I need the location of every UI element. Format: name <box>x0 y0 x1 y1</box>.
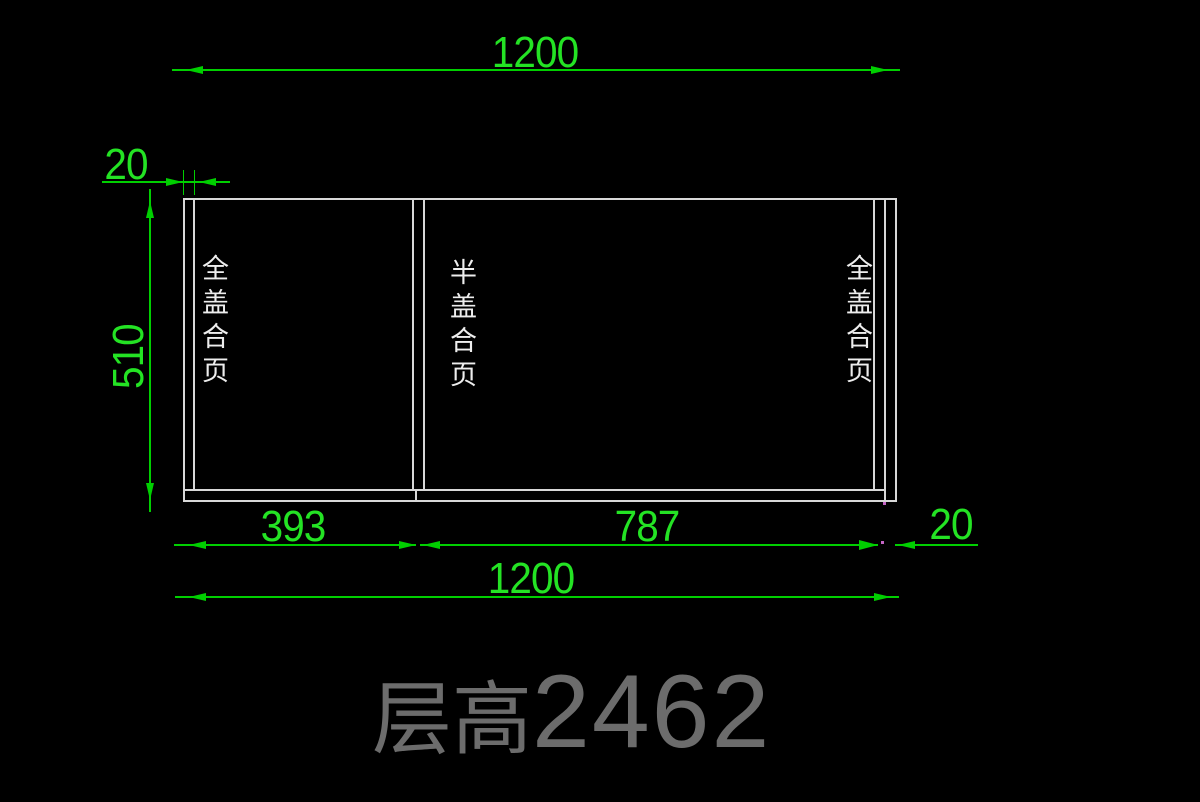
right-door-edge-line <box>873 198 875 491</box>
right-arrowhead <box>874 593 894 601</box>
right-arrowhead <box>399 541 419 549</box>
left-arrowhead <box>183 66 203 74</box>
left-door-hinge-label[interactable]: 全盖合页 <box>199 254 226 390</box>
cabinet-right-edge <box>895 198 897 502</box>
right-arrowhead <box>871 66 891 74</box>
top-arrowhead <box>146 198 154 218</box>
left-arrowhead <box>186 541 206 549</box>
middle-door-hinge-label[interactable]: 半盖合页 <box>447 258 474 394</box>
left-arrowhead <box>420 541 440 549</box>
middle-divider-bottom-stub <box>415 490 417 501</box>
floor-height-title[interactable]: 层高2462 <box>372 660 771 771</box>
dim-text-left-panel[interactable]: 20 <box>104 143 147 187</box>
right-door-hinge-label[interactable]: 全盖合页 <box>843 254 870 390</box>
snap-marker <box>881 541 884 544</box>
right-panel-inner-line <box>884 198 886 502</box>
dim-text-height[interactable]: 510 <box>107 324 151 389</box>
dim-text-bottom-width[interactable]: 1200 <box>488 557 574 601</box>
left-arrowhead <box>186 593 206 601</box>
cabinet-top-edge <box>183 198 895 200</box>
middle-divider-right-line <box>423 198 425 491</box>
middle-divider-left-line <box>412 198 414 491</box>
cad-drawing-canvas[interactable]: 全盖合页 半盖合页 全盖合页 1200 20 510 393 <box>0 0 1200 802</box>
dim-text-top-width[interactable]: 1200 <box>492 31 578 75</box>
dim-text-right-section[interactable]: 787 <box>615 505 680 549</box>
bottom-rail-line <box>183 489 885 491</box>
right-arrowhead <box>859 540 881 550</box>
right-arrowhead <box>196 178 216 186</box>
bottom-arrowhead <box>146 483 154 503</box>
dim-text-right-panel[interactable]: 20 <box>929 503 972 547</box>
floor-height-prefix: 层高 <box>372 671 532 771</box>
snap-marker <box>883 502 886 505</box>
dim-text-left-section[interactable]: 393 <box>261 505 326 549</box>
floor-height-value: 2462 <box>532 660 771 764</box>
left-panel-inner-line <box>193 198 195 491</box>
cabinet-left-edge <box>183 198 185 502</box>
left-arrowhead <box>166 178 186 186</box>
